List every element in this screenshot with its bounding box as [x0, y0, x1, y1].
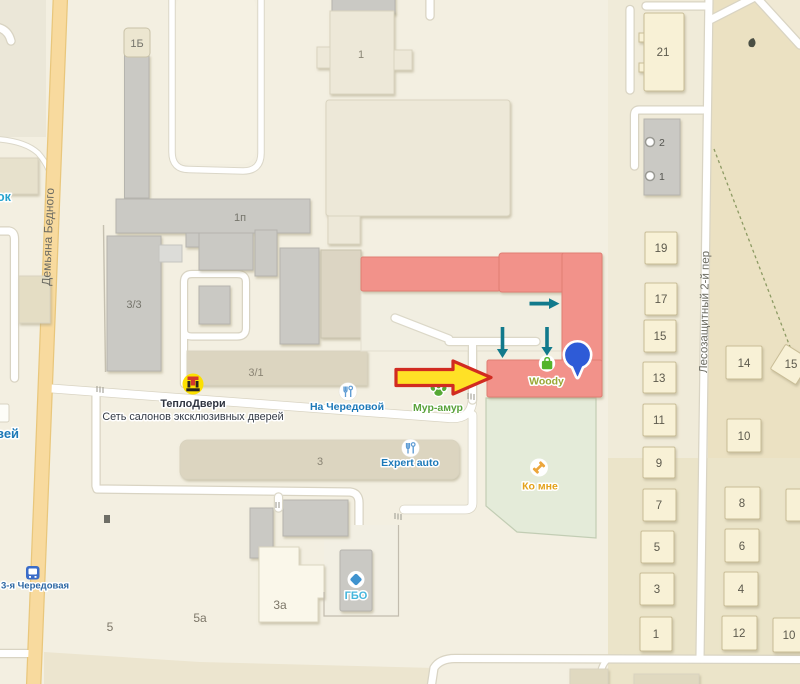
svg-text:11: 11 — [653, 415, 665, 427]
svg-text:1: 1 — [653, 629, 659, 641]
svg-text:5: 5 — [654, 542, 660, 554]
svg-text:6: 6 — [739, 541, 745, 553]
svg-text:2: 2 — [659, 137, 665, 149]
svg-text:На Чередовой: На Чередовой — [310, 401, 384, 413]
svg-text:Лесозащитный 2-й пер: Лесозащитный 2-й пер — [698, 251, 712, 373]
svg-text:7: 7 — [656, 500, 662, 512]
svg-text:1: 1 — [659, 171, 665, 183]
svg-text:17: 17 — [655, 294, 668, 306]
svg-text:1п: 1п — [234, 212, 246, 224]
svg-text:Expert auto: Expert auto — [381, 457, 439, 469]
svg-text:5а: 5а — [193, 611, 207, 625]
svg-text:10: 10 — [783, 630, 796, 642]
svg-text:Ко мне: Ко мне — [522, 481, 558, 493]
svg-text:4: 4 — [738, 584, 745, 596]
svg-text:10: 10 — [738, 431, 751, 443]
svg-text:3: 3 — [654, 584, 660, 596]
svg-text:19: 19 — [655, 243, 668, 255]
svg-text:Woody: Woody — [529, 376, 564, 388]
svg-text:Мур-амур: Мур-амур — [413, 402, 463, 414]
svg-text:1: 1 — [358, 49, 364, 61]
svg-text:12: 12 — [733, 628, 746, 640]
svg-text:3: 3 — [317, 456, 323, 468]
svg-text:ТеплоДвери: ТеплоДвери — [160, 398, 225, 410]
svg-text:9: 9 — [656, 458, 662, 470]
svg-text:15: 15 — [654, 331, 667, 343]
svg-text:21: 21 — [657, 47, 670, 59]
svg-text:3/1: 3/1 — [248, 367, 263, 379]
svg-text:15: 15 — [785, 359, 798, 371]
svg-text:8: 8 — [739, 498, 745, 510]
svg-text:Сеть салонов эксклюзивных двер: Сеть салонов эксклюзивных дверей — [102, 411, 283, 423]
svg-text:14: 14 — [738, 358, 751, 370]
svg-text:13: 13 — [653, 373, 666, 385]
svg-text:1Б: 1Б — [130, 38, 143, 50]
svg-text:ГБО: ГБО — [345, 590, 368, 602]
svg-text:3-я Чередовая: 3-я Чередовая — [1, 581, 69, 592]
svg-text:5: 5 — [107, 620, 114, 634]
svg-text:3а: 3а — [273, 598, 287, 612]
svg-text:ок: ок — [0, 190, 12, 204]
svg-text:3/3: 3/3 — [126, 299, 141, 311]
svg-text:вей: вей — [0, 426, 19, 441]
